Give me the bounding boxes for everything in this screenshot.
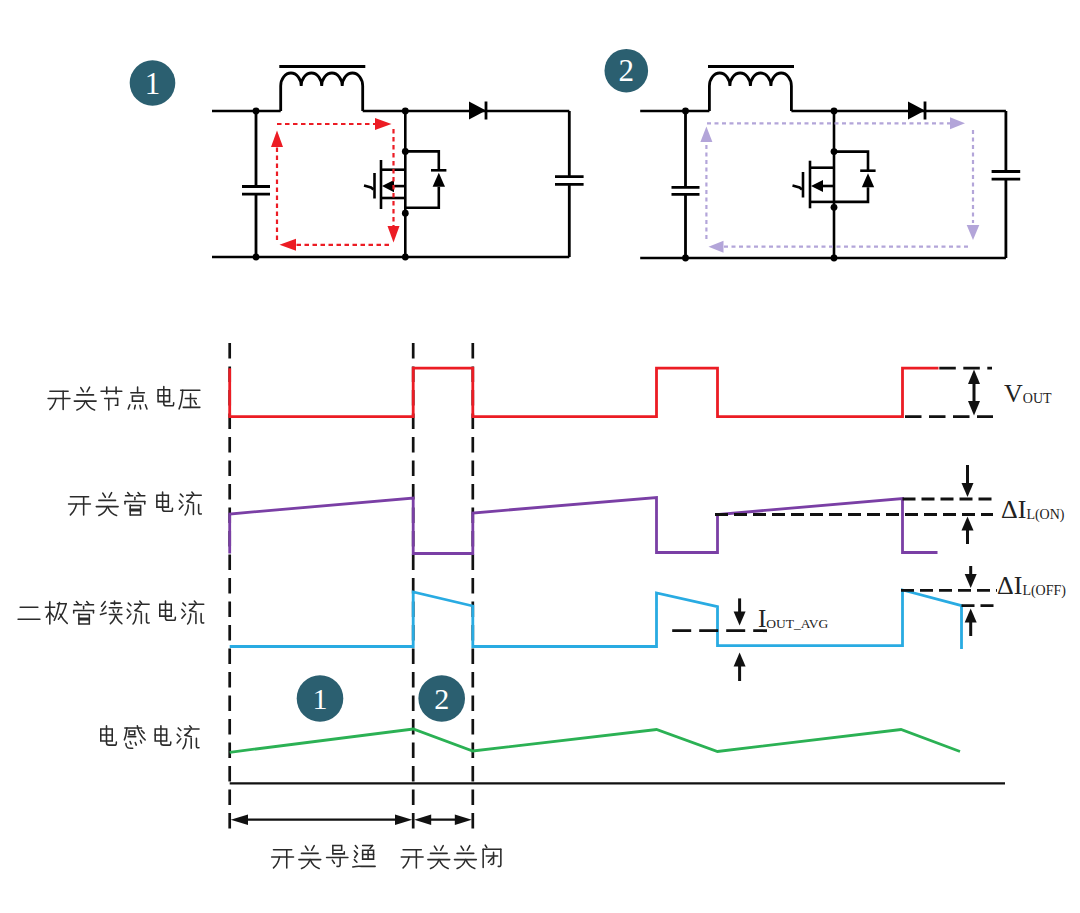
svg-text:2: 2 — [619, 53, 635, 88]
svg-text:1: 1 — [313, 682, 328, 715]
svg-text:ΔIL(ON): ΔIL(ON) — [1001, 495, 1065, 524]
svg-text:ΔIL(OFF): ΔIL(OFF) — [997, 571, 1066, 600]
svg-text:IOUT_AVG: IOUT_AVG — [758, 605, 829, 632]
svg-text:2: 2 — [434, 682, 449, 715]
svg-text:1: 1 — [145, 66, 161, 101]
svg-text:VOUT: VOUT — [1004, 379, 1052, 408]
